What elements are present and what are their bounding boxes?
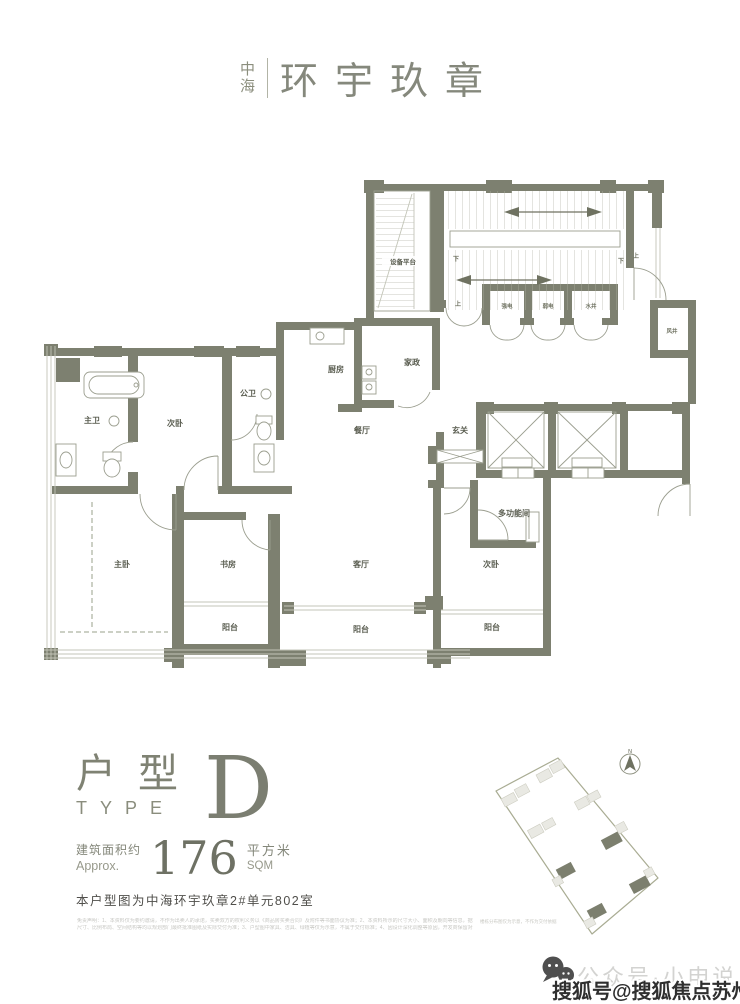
stair-down-label: 下	[618, 258, 624, 265]
area-unit-wrap: 平方米 SQM	[247, 843, 292, 874]
kitchen-fixtures	[310, 328, 376, 394]
room-label-housekeeping: 家政	[404, 357, 420, 367]
site-map: N 楼栋分布图仅为示意，不作为交付依据	[480, 749, 659, 934]
site-boundary	[496, 758, 658, 934]
appliance-box	[362, 381, 376, 394]
disclaimer-line-1: 免责声明：1、本资料仅为要约邀请，不作为出卖人的承诺，买卖双方的权利义务以《商品…	[77, 918, 473, 925]
room-label-public-bath: 公卫	[240, 389, 256, 398]
room-label-bedroom3: 次卧	[483, 559, 499, 569]
unit-type-cn-wrap: 户型 TYPE	[76, 752, 200, 819]
area-label-cn: 建筑面积约	[76, 842, 141, 858]
site-map-note: 楼栋分布图仅为示意，不作为交付依据	[480, 918, 557, 925]
room-label-balcony3: 阳台	[484, 622, 500, 632]
equipment-platform	[374, 191, 430, 311]
stair-up-label: 上	[455, 300, 461, 308]
room-label-weak-electric: 弱电	[542, 302, 554, 310]
unit-type-letter: D	[204, 752, 273, 826]
kitchen-sink	[310, 328, 344, 344]
room-label-living: 客厅	[352, 559, 369, 569]
room-label-strong-electric: 强电	[501, 302, 513, 310]
room-label-balcony2: 阳台	[353, 624, 369, 634]
area-unit-cn: 平方米	[247, 843, 292, 859]
elevator-2	[558, 412, 616, 478]
sink-master-bath	[109, 416, 119, 426]
sink-public-bath	[261, 389, 271, 399]
unit-type-block: 户型 TYPE D 建筑面积约 Approx. 176 平方米 SQM 本户型图…	[76, 752, 406, 909]
stairwell: 下 下 上 上	[444, 191, 639, 310]
disclaimer-text: 免责声明：1、本资料仅为要约邀请，不作为出卖人的承诺，买卖双方的权利义务以《商品…	[77, 918, 473, 931]
area-unit-en: SQM	[247, 859, 292, 874]
room-label-balcony1: 阳台	[222, 622, 238, 632]
unit-type-en: TYPE	[76, 798, 200, 819]
site-buildings-dark	[549, 821, 659, 928]
elevator-1	[488, 412, 544, 478]
unit-area-row: 建筑面积约 Approx. 176 平方米 SQM	[76, 838, 406, 878]
unit-type-cn: 户型	[76, 752, 200, 796]
area-label-en: Approx.	[76, 858, 141, 874]
floorplan-poster: 中 海 环宇玖章	[0, 0, 740, 1004]
stair-up-label: 上	[633, 252, 639, 260]
room-label-kitchen: 厨房	[328, 364, 344, 374]
appliance-box	[362, 366, 376, 379]
room-label-water-shaft: 水井	[585, 302, 597, 310]
north-label: N	[628, 749, 632, 755]
room-label-master: 主卧	[114, 559, 130, 569]
room-label-bedroom2: 次卧	[167, 418, 183, 428]
room-label-air-shaft: 风井	[666, 327, 678, 335]
room-label-dining: 餐厅	[353, 425, 370, 435]
site-buildings-light	[500, 760, 601, 839]
area-value: 176	[150, 838, 238, 878]
watermark-sohu-text: 搜狐号@搜狐焦点苏州站	[552, 975, 740, 1004]
stair-down-label: 下	[453, 256, 459, 263]
room-label-multi: 多功能间	[498, 508, 530, 518]
room-label-study: 书房	[220, 559, 236, 569]
room-label-master-bath: 主卫	[84, 415, 100, 425]
room-label-foyer: 玄关	[452, 425, 468, 435]
disclaimer-line-2: 尺寸、比例布局、空间结构等均以规划部门最终批准图纸及实际交付为准；3、户型图中家…	[77, 925, 473, 932]
north-compass-icon: N	[620, 749, 640, 774]
room-label-equipment: 设备平台	[390, 257, 417, 266]
area-label-wrap: 建筑面积约 Approx.	[76, 842, 141, 874]
unit-description: 本户型图为中海环宇玖章2#单元802室	[76, 890, 406, 909]
